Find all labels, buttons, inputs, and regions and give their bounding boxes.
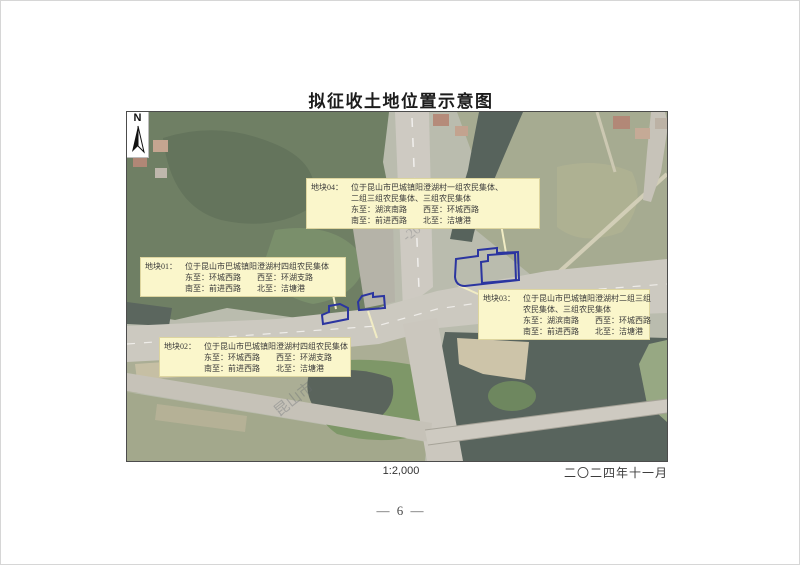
annotation-line: 南至：前进西路 北至：洁塘港 — [204, 363, 348, 374]
annotation-line: 东至：湖滨南路 西至：环城西路 — [523, 315, 651, 326]
document-page: 拟征收土地位置示意图 — [0, 0, 800, 565]
annotation-line: 位于昆山市巴城镇阳澄湖村二组三组 — [523, 293, 651, 304]
annotation-line: 南至：前进西路 北至：洁塘港 — [185, 283, 341, 294]
annotation-line: 位于昆山市巴城镇阳澄湖村四组农民集体 — [185, 261, 341, 272]
north-arrow-icon — [129, 125, 147, 155]
annotation-line: 东至：湖滨南路 西至：环城西路 — [351, 204, 535, 215]
map-scale: 1:2,000 — [351, 465, 451, 477]
parcel-id-04: 地块04： — [311, 182, 351, 226]
annotation-line: 位于昆山市巴城镇阳澄湖村四组农民集体 — [204, 341, 348, 352]
parcel-annotation-02: 地块02： 位于昆山市巴城镇阳澄湖村四组农民集体 东至：环城西路 西至：环湖支路… — [159, 337, 351, 377]
parcel-annotation-04: 地块04： 位于昆山市巴城镇阳澄湖村一组农民集体、 二组三组农民集体、三组农民集… — [306, 178, 540, 229]
annotation-line: 东至：环城西路 西至：环湖支路 — [204, 352, 348, 363]
annotation-line: 南至：前进西路 北至：洁塘港 — [523, 326, 651, 337]
annotation-line: 南至：前进西路 北至：洁塘港 — [351, 215, 535, 226]
north-arrow: N — [127, 112, 149, 158]
parcel-annotation-01: 地块01： 位于昆山市巴城镇阳澄湖村四组农民集体 东至：环城西路 西至：环湖支路… — [140, 257, 346, 297]
annotation-line: 位于昆山市巴城镇阳澄湖村一组农民集体、 — [351, 182, 535, 193]
annotation-line: 农民集体、三组农民集体 — [523, 304, 651, 315]
page-number: — 6 — — [1, 503, 800, 519]
page-title: 拟征收土地位置示意图 — [1, 87, 800, 112]
parcel-annotation-03: 地块03： 位于昆山市巴城镇阳澄湖村二组三组 农民集体、三组农民集体 东至：湖滨… — [478, 289, 650, 340]
annotation-line: 东至：环城西路 西至：环湖支路 — [185, 272, 341, 283]
parcel-id-02: 地块02： — [164, 341, 204, 374]
parcel-id-01: 地块01： — [145, 261, 185, 294]
north-label: N — [127, 112, 148, 125]
map-date: 二〇二四年十一月 — [556, 464, 668, 481]
annotation-line: 二组三组农民集体、三组农民集体 — [351, 193, 535, 204]
parcel-id-03: 地块03： — [483, 293, 523, 337]
